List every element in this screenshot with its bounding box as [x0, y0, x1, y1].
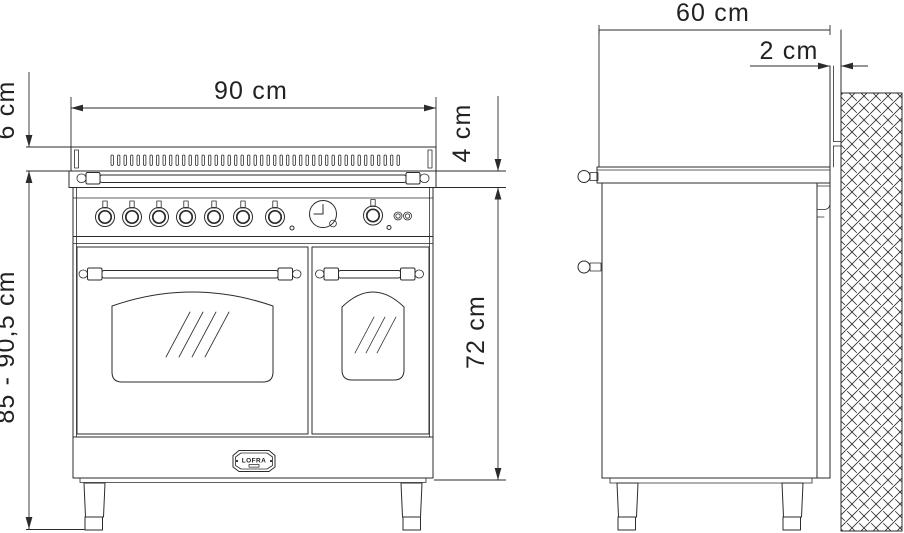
vent-slot — [339, 155, 341, 166]
side-view — [578, 30, 902, 531]
glass-reflection — [166, 312, 190, 357]
control-knob — [177, 201, 196, 227]
left-door-handle — [79, 268, 301, 280]
vent-slot — [365, 155, 367, 166]
vent-slot — [209, 155, 211, 166]
wall-section — [841, 30, 902, 531]
vent-slot — [183, 155, 185, 166]
right-window-reflections — [355, 317, 396, 353]
control-knob — [205, 201, 224, 227]
vent-slot — [228, 155, 230, 166]
body-shell — [73, 188, 433, 483]
dim-wall-clearance-label: 2 cm — [760, 37, 819, 65]
indicator-light — [394, 212, 402, 220]
side-rail-knob — [578, 171, 590, 183]
vent-slot — [313, 155, 315, 166]
rail-knob-right — [420, 174, 429, 183]
leg-foot — [783, 517, 801, 530]
vent-slot — [124, 155, 126, 166]
left-window-reflections — [166, 312, 229, 357]
glass-reflection — [179, 312, 203, 357]
vent-slot — [235, 155, 237, 166]
vent-slot — [111, 155, 113, 166]
brand-sub-mark — [249, 465, 259, 468]
leg-foot — [85, 517, 103, 530]
leg-foot — [403, 517, 421, 530]
left-door-window — [112, 292, 273, 382]
right-door-window — [342, 292, 404, 380]
rail-knob-left — [77, 174, 86, 183]
dim-total-height: 85 - 90,5 cm — [0, 171, 85, 530]
dim-width-label: 90 cm — [214, 77, 288, 105]
rear-bracket — [817, 186, 830, 217]
brand-plate: LOFRA — [233, 451, 275, 472]
vent-slot — [300, 155, 302, 166]
control-knob — [266, 201, 285, 227]
ignition-dot-left — [290, 226, 294, 230]
vent-slot — [280, 155, 282, 166]
glass-reflection — [366, 317, 385, 353]
vent-slot — [332, 155, 334, 166]
vent-slot — [391, 155, 393, 166]
vent-slot — [358, 155, 360, 166]
vent-slot — [261, 155, 263, 166]
vent-panel — [71, 147, 436, 171]
front-legs — [84, 483, 422, 530]
vent-slot — [306, 155, 308, 166]
rail-cap-right — [406, 173, 420, 185]
dim-depth: 60 cm — [599, 0, 830, 167]
vent-slot — [163, 155, 165, 166]
vent-slot — [384, 155, 386, 166]
vent-slot — [189, 155, 191, 166]
vent-slot — [137, 155, 139, 166]
vent-slot — [326, 155, 328, 166]
wall-hatch — [841, 93, 902, 531]
vent-end-cap-left — [75, 150, 79, 168]
front-view: LOFRA — [69, 147, 436, 530]
control-knob — [123, 201, 142, 227]
leg-foot — [618, 517, 636, 530]
dim-width: 90 cm — [71, 77, 436, 171]
glass-reflection — [192, 312, 216, 357]
vent-end-cap-right — [428, 150, 432, 168]
rear-spacer — [830, 66, 841, 478]
vent-slot — [287, 155, 289, 166]
vent-slot — [248, 155, 250, 166]
dim-backguard-label: 6 cm — [0, 81, 20, 140]
leg — [84, 483, 105, 517]
vent-slot — [157, 155, 159, 166]
leg — [782, 483, 803, 517]
vent-slot — [293, 155, 295, 166]
vent-slot — [345, 155, 347, 166]
vent-slot — [319, 155, 321, 166]
dim-rail-band-label: 4 cm — [448, 104, 476, 163]
vent-slot — [378, 155, 380, 166]
clock-timer — [310, 201, 337, 228]
control-knob — [364, 200, 383, 226]
vent-slot — [241, 155, 243, 166]
left-oven-door — [77, 247, 308, 434]
vent-slot — [144, 155, 146, 166]
side-handle-knob — [578, 261, 590, 273]
range-dimension-diagram: LOFRA — [0, 0, 904, 533]
vent-slots — [111, 155, 399, 166]
right-door-handle — [316, 268, 424, 280]
indicator-lights — [394, 212, 412, 220]
vent-slot — [352, 155, 354, 166]
vent-slot — [222, 155, 224, 166]
vent-slot — [176, 155, 178, 166]
glass-reflection — [377, 317, 396, 353]
side-body — [578, 66, 841, 483]
dim-total-height-label: 85 - 90,5 cm — [0, 270, 20, 423]
dim-body-height: 72 cm — [434, 188, 506, 481]
vent-slot — [397, 155, 399, 166]
vent-slot — [170, 155, 172, 166]
base-lip — [80, 478, 426, 483]
control-knob — [150, 201, 169, 227]
vent-slot — [202, 155, 204, 166]
dim-wall-clearance: 2 cm — [750, 37, 868, 69]
rail-bar — [100, 175, 406, 183]
towel-rail — [69, 171, 436, 188]
leg — [401, 483, 422, 517]
dim-rail-band: 4 cm — [436, 96, 506, 188]
vent-slot — [267, 155, 269, 166]
control-knob — [234, 201, 253, 227]
vent-slot — [274, 155, 276, 166]
glass-reflection — [355, 317, 374, 353]
vent-slot — [118, 155, 120, 166]
rail-cap-left — [86, 173, 100, 185]
vent-slot — [150, 155, 152, 166]
vent-slot — [371, 155, 373, 166]
glass-reflection — [205, 312, 229, 357]
control-panel — [96, 200, 412, 231]
vent-slot — [131, 155, 133, 166]
dim-backguard: 6 cm — [0, 72, 71, 171]
vent-slot — [196, 155, 198, 166]
indicator-light — [404, 212, 412, 220]
control-knob — [96, 201, 115, 227]
dim-body-height-label: 72 cm — [462, 295, 490, 369]
dim-depth-label: 60 cm — [676, 0, 750, 27]
burner-knobs — [96, 201, 285, 227]
right-oven-door — [312, 247, 429, 434]
oven-knob-group — [364, 200, 383, 226]
brand-name: LOFRA — [242, 458, 266, 465]
side-legs — [617, 483, 803, 530]
dimension-annotations: 90 cm 6 cm 85 - 90,5 cm 4 cm — [0, 0, 868, 530]
vent-slot — [215, 155, 217, 166]
vent-slot — [254, 155, 256, 166]
ignition-dot-right — [387, 226, 391, 230]
leg — [617, 483, 638, 517]
